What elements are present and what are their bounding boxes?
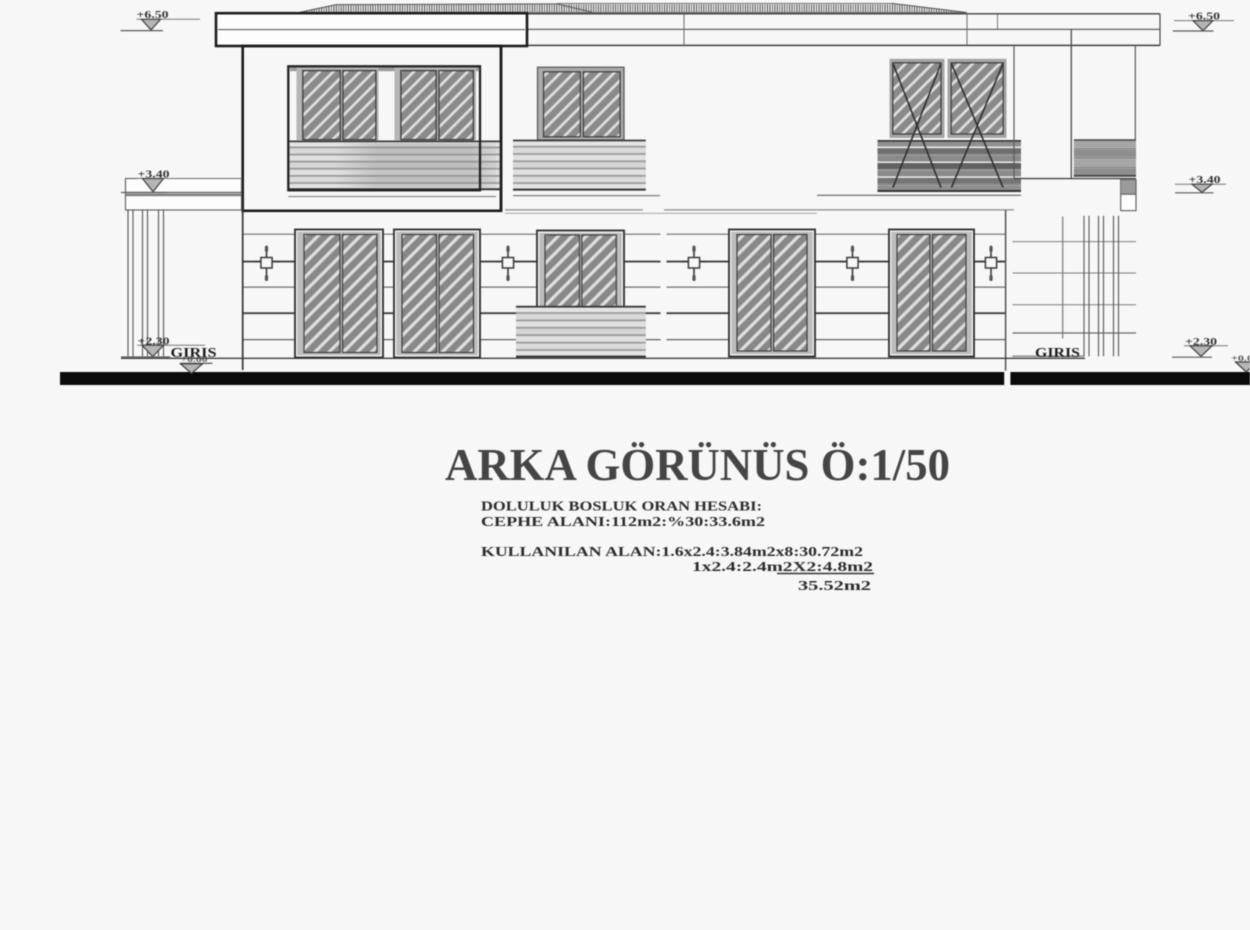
- svg-text:CEPHE ALANI:112m2:%30:33.6m2: CEPHE ALANI:112m2:%30:33.6m2: [481, 514, 765, 529]
- svg-text:KULLANILAN ALAN:1.6x2.4:3.84m: KULLANILAN ALAN:1.6x2.4:3.84m2x8:30.72m2: [481, 544, 863, 559]
- svg-text:1x2.4:2.4m2X2:4.8m2: 1x2.4:2.4m2X2:4.8m2: [692, 559, 873, 574]
- svg-text:GIRIS: GIRIS: [171, 345, 217, 360]
- svg-text:ARKA GÖRÜNÜS Ö:1/50: ARKA GÖRÜNÜS Ö:1/50: [445, 439, 950, 490]
- svg-text:GIRIS: GIRIS: [1035, 345, 1080, 360]
- svg-text:DOLULUK BOSLUK ORAN HESABI:: DOLULUK BOSLUK ORAN HESABI:: [481, 499, 762, 514]
- svg-text:35.52m2: 35.52m2: [798, 578, 871, 593]
